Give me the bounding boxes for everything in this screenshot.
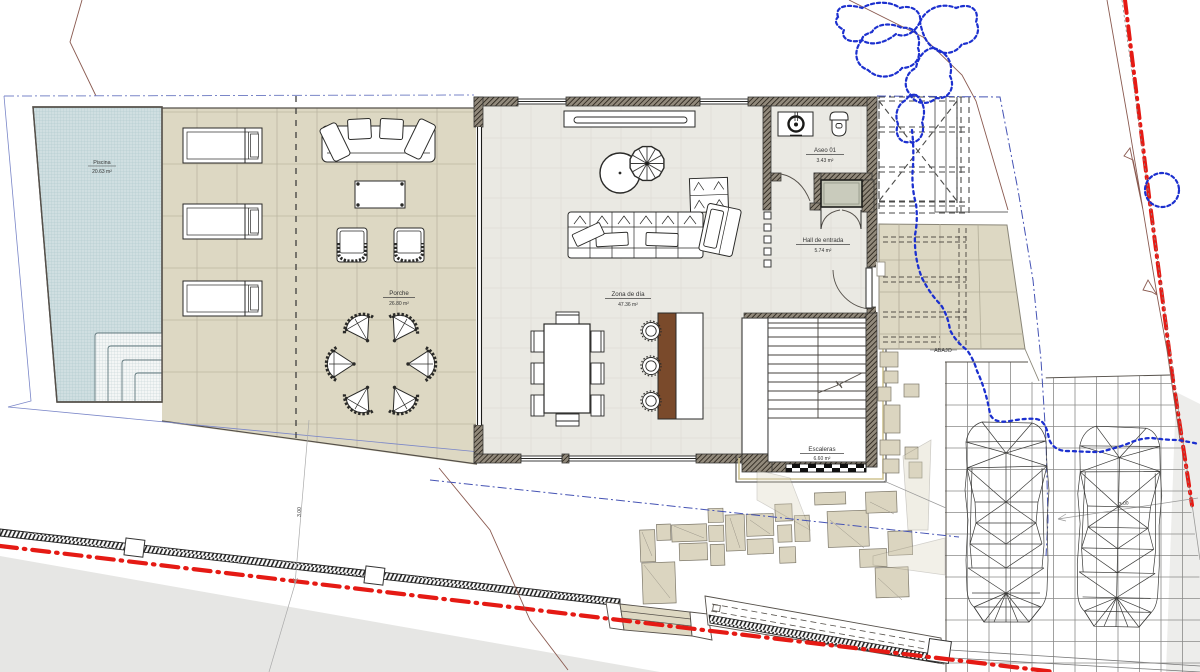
svg-text:Hall de entrada: Hall de entrada bbox=[803, 238, 844, 244]
svg-text:47.36 m²: 47.36 m² bbox=[618, 302, 638, 308]
svg-text:Porche: Porche bbox=[389, 290, 409, 297]
svg-text:20.63 m²: 20.63 m² bbox=[92, 169, 112, 175]
svg-text:Escaleras: Escaleras bbox=[808, 446, 835, 453]
svg-text:26.80 m²: 26.80 m² bbox=[389, 301, 409, 307]
svg-text:ABAJO: ABAJO bbox=[934, 348, 952, 354]
svg-text:Piscina: Piscina bbox=[93, 160, 110, 166]
svg-text:6.60 m²: 6.60 m² bbox=[814, 456, 831, 462]
svg-text:Zona de día: Zona de día bbox=[611, 291, 645, 298]
svg-text:3.00: 3.00 bbox=[297, 507, 303, 517]
svg-text:3.43 m²: 3.43 m² bbox=[817, 158, 834, 164]
svg-text:5.74 m²: 5.74 m² bbox=[815, 248, 832, 254]
svg-text:Aseo 01: Aseo 01 bbox=[814, 148, 837, 154]
